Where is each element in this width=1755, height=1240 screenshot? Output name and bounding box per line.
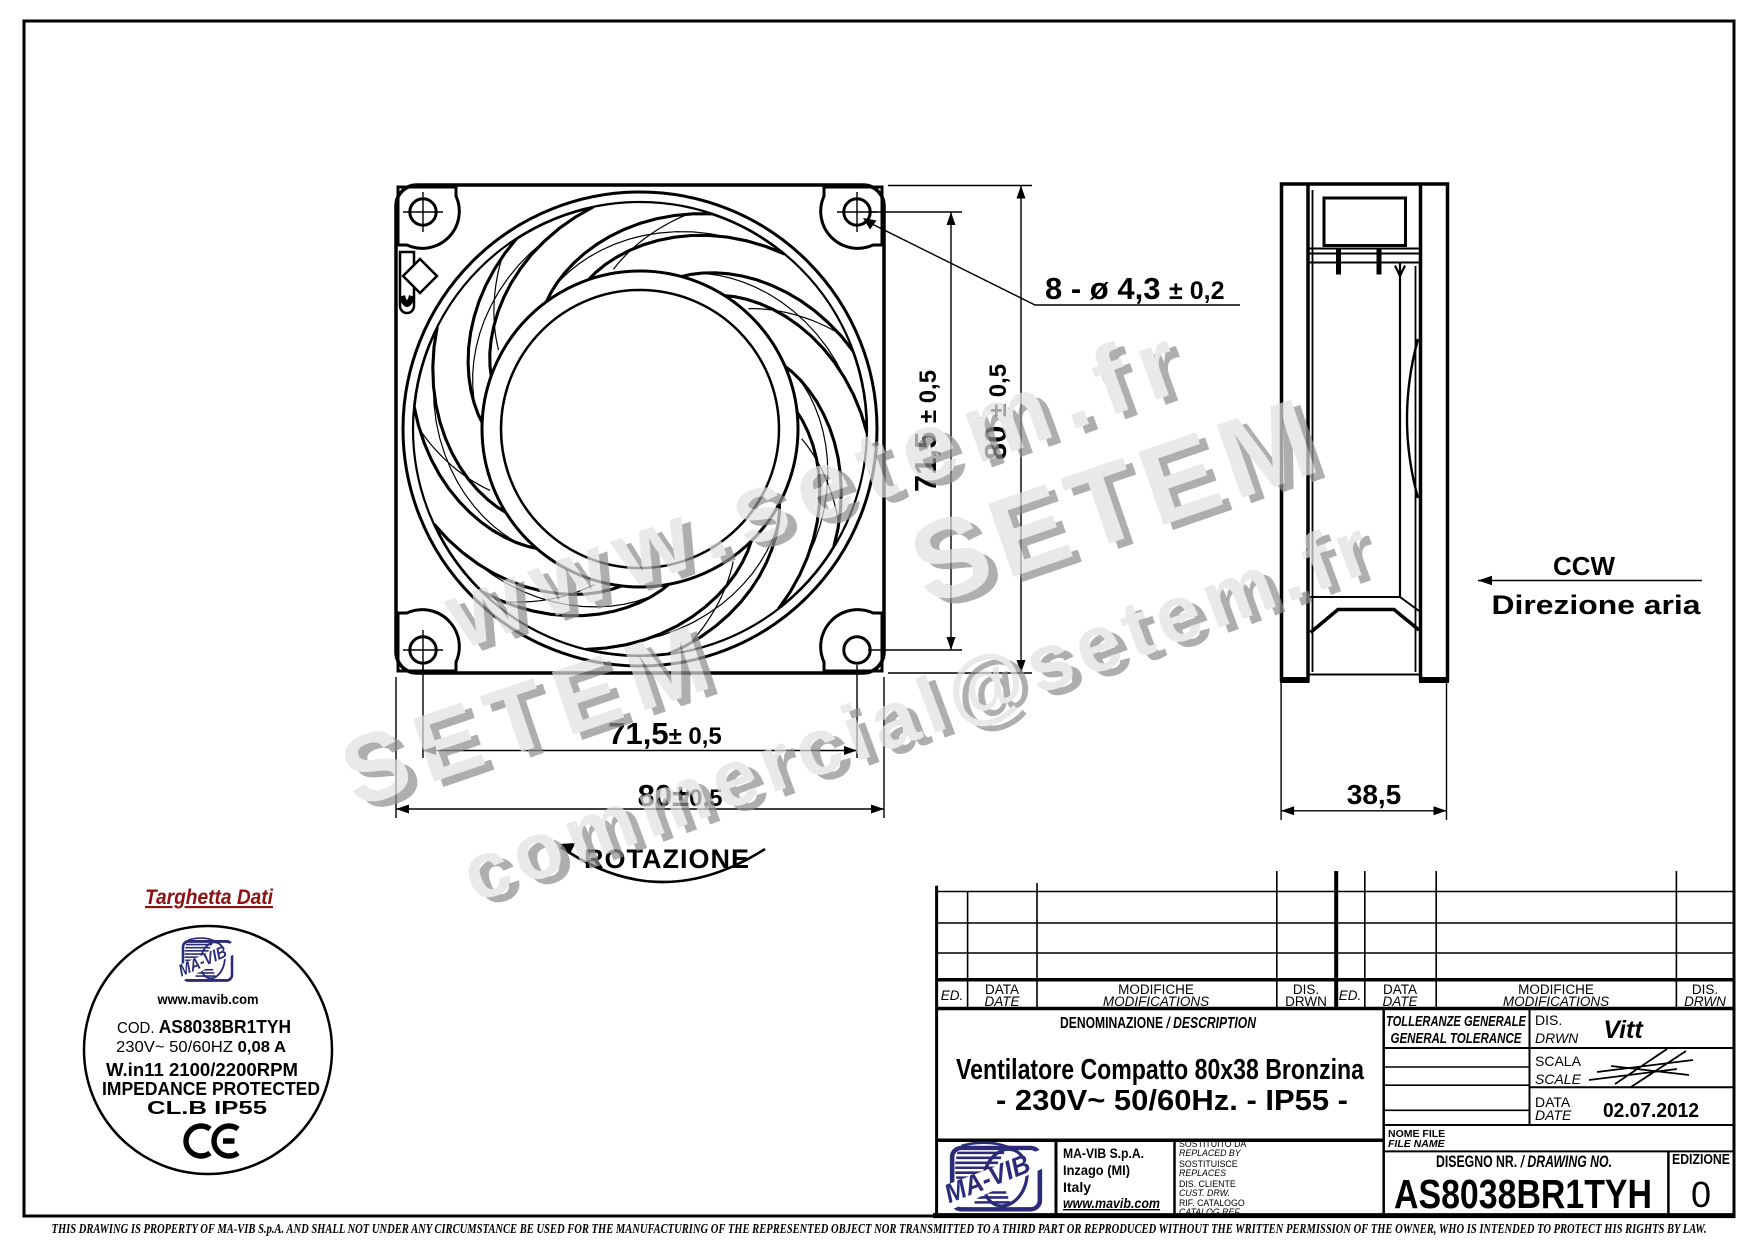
svg-text:TOLLERANZE GENERALE: TOLLERANZE GENERALE — [1386, 1014, 1527, 1030]
svg-text:DATE: DATE — [1382, 994, 1418, 1009]
svg-text:DENOMINAZIONE / DESCRIPTION: DENOMINAZIONE / DESCRIPTION — [1060, 1015, 1257, 1032]
svg-text:230V~ 50/60HZ 0,08 A: 230V~ 50/60HZ 0,08 A — [116, 1039, 286, 1056]
svg-text:www.mavib.com: www.mavib.com — [1063, 1195, 1160, 1211]
svg-text:DIS.: DIS. — [1535, 1012, 1562, 1028]
svg-text:DATE: DATE — [984, 994, 1020, 1009]
svg-text:Inzago (MI): Inzago (MI) — [1063, 1162, 1130, 1178]
svg-text:Vitt: Vitt — [1603, 1016, 1644, 1044]
svg-text:IMPEDANCE PROTECTED: IMPEDANCE PROTECTED — [102, 1079, 320, 1099]
svg-text:CL.B IP55: CL.B IP55 — [147, 1098, 267, 1118]
svg-text:MODIFICATIONS: MODIFICATIONS — [1503, 994, 1609, 1009]
svg-text:AS8038BR1TYH: AS8038BR1TYH — [1394, 1171, 1652, 1217]
svg-text:02.07.2012: 02.07.2012 — [1603, 1100, 1699, 1122]
svg-text:CATALOG REF.: CATALOG REF. — [1179, 1207, 1241, 1217]
svg-text:CCW: CCW — [1553, 551, 1616, 581]
svg-text:SCALE: SCALE — [1535, 1071, 1582, 1087]
svg-text:www.mavib.com: www.mavib.com — [157, 992, 259, 1007]
svg-text:FILE NAME: FILE NAME — [1388, 1138, 1446, 1150]
svg-text:REPLACED BY: REPLACED BY — [1179, 1148, 1242, 1158]
svg-text:0: 0 — [1691, 1174, 1711, 1215]
svg-text:Italy: Italy — [1063, 1179, 1091, 1195]
svg-text:DATE: DATE — [1535, 1107, 1572, 1123]
svg-text:Ventilatore Compatto 80x38 Bro: Ventilatore Compatto 80x38 Bronzina — [956, 1054, 1365, 1086]
svg-text:ED.: ED. — [941, 988, 964, 1003]
svg-text:SCALA: SCALA — [1535, 1053, 1582, 1069]
svg-text:ED.: ED. — [1339, 988, 1362, 1003]
svg-text:Direzione aria: Direzione aria — [1492, 590, 1702, 620]
svg-text:MODIFICATIONS: MODIFICATIONS — [1103, 994, 1209, 1009]
svg-text:DISEGNO NR. / DRAWING NO.: DISEGNO NR. / DRAWING NO. — [1436, 1152, 1612, 1171]
svg-text:REPLACES: REPLACES — [1179, 1168, 1226, 1178]
svg-text:MA-VIB S.p.A.: MA-VIB S.p.A. — [1063, 1145, 1144, 1161]
svg-text:DRWN: DRWN — [1535, 1030, 1579, 1046]
svg-text:CUST. DRW.: CUST. DRW. — [1179, 1188, 1230, 1198]
svg-text:THIS DRAWING IS PROPERTY OF MA: THIS DRAWING IS PROPERTY OF MA-VIB S.p.A… — [52, 1221, 1707, 1236]
svg-text:EDIZIONE: EDIZIONE — [1672, 1152, 1730, 1168]
svg-text:W.in11 2100/2200RPM: W.in11 2100/2200RPM — [106, 1060, 298, 1080]
svg-text:8 - ø 4,3 ± 0,2: 8 - ø 4,3 ± 0,2 — [1045, 271, 1224, 306]
svg-text:DRWN: DRWN — [1285, 994, 1327, 1009]
svg-text:COD. AS8038BR1TYH: COD. AS8038BR1TYH — [117, 1016, 291, 1037]
svg-text:GENERAL TOLERANCE: GENERAL TOLERANCE — [1391, 1031, 1523, 1047]
svg-text:38,5: 38,5 — [1347, 779, 1402, 810]
svg-text:DRWN: DRWN — [1684, 994, 1726, 1009]
svg-text:Targhetta Dati: Targhetta Dati — [145, 885, 274, 909]
svg-text:- 230V~ 50/60Hz. - IP55: - 230V~ 50/60Hz. - IP55 - — [996, 1085, 1348, 1117]
